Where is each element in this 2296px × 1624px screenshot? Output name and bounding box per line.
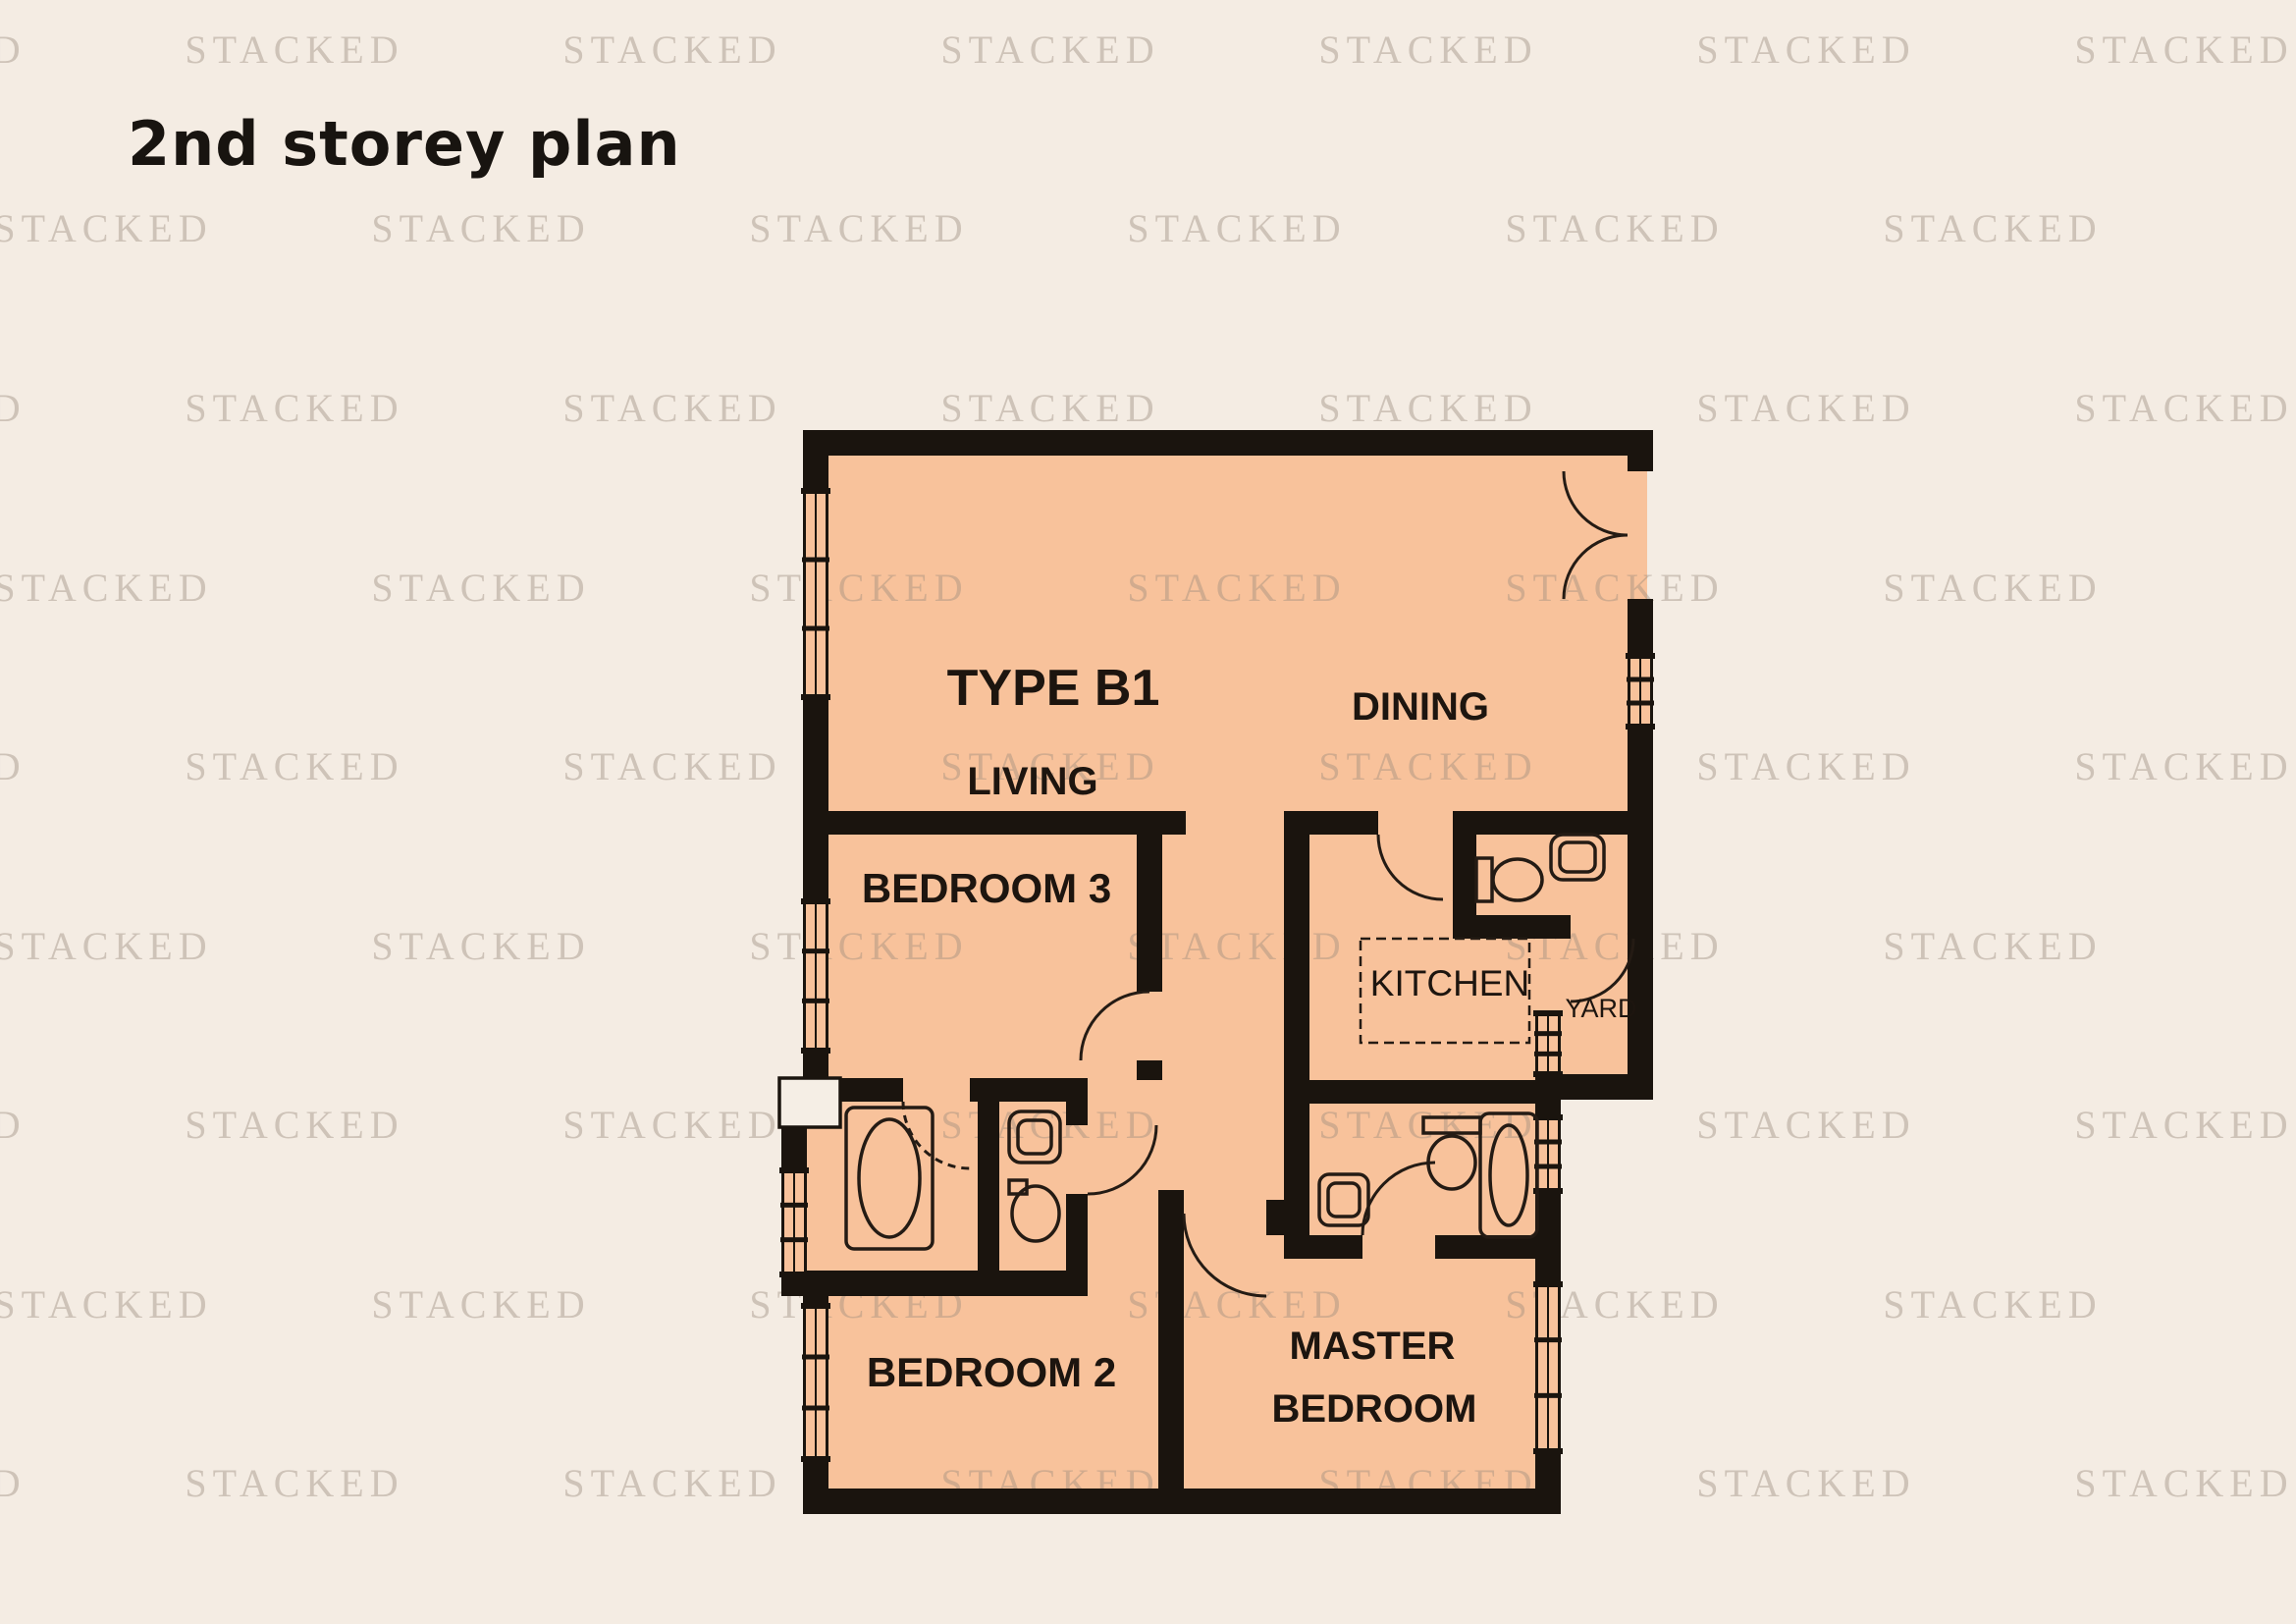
watermark-text: STACKED (749, 206, 968, 250)
window-part (1626, 653, 1655, 659)
wall-segment (1628, 456, 1653, 471)
watermark-text: STACKED (562, 1461, 781, 1505)
window-part (802, 1406, 829, 1411)
watermark-text: STACKED (0, 566, 213, 610)
window-part (1533, 1448, 1563, 1454)
watermark-text: STACKED (0, 924, 213, 968)
wall-segment (1453, 811, 1628, 835)
watermark-text: STACKED (562, 386, 781, 430)
watermark-text: STACKED (1505, 206, 1724, 250)
wall-segment (781, 1271, 1088, 1296)
watermark-text: STACKED (0, 386, 27, 430)
watermark-text: STACKED (1883, 924, 2102, 968)
wall-segment (1284, 811, 1309, 1104)
master-bedroom-label-line2: BEDROOM (1272, 1387, 1477, 1431)
window-part (1626, 724, 1655, 730)
watermark-text: STACKED (1505, 566, 1724, 610)
watermark-text: STACKED (2074, 27, 2293, 72)
watermark-text: STACKED (371, 206, 590, 250)
master-bedroom-label-line1: MASTER (1290, 1325, 1456, 1368)
watermark-text: STACKED (562, 27, 781, 72)
window-part (802, 558, 829, 563)
window-part (1534, 1393, 1562, 1398)
watermark-text: STACKED (749, 924, 968, 968)
yard-label: YARD (1565, 994, 1636, 1023)
wall-segment (803, 1489, 1561, 1514)
window-part (1627, 677, 1654, 682)
watermark-text: STACKED (1318, 386, 1537, 430)
watermark-text: STACKED (0, 206, 213, 250)
window-part (1534, 1052, 1562, 1056)
window-part (1533, 1010, 1563, 1016)
window-part (1627, 701, 1654, 706)
dining-label: DINING (1352, 685, 1489, 729)
watermark-text: STACKED (185, 1461, 403, 1505)
window-part (802, 999, 829, 1003)
wall-segment (1266, 1200, 1284, 1235)
bedroom2-label: BEDROOM 2 (867, 1349, 1116, 1395)
wall-segment (803, 811, 1186, 835)
watermark-text: STACKED (1318, 744, 1537, 788)
wall-segment (1137, 1060, 1162, 1080)
wall-segment (1476, 915, 1571, 939)
watermark-text: STACKED (2074, 1461, 2293, 1505)
wall-segment (1066, 1102, 1088, 1125)
wall-segment (1453, 811, 1476, 939)
window-part (801, 898, 830, 904)
watermark-text: STACKED (1883, 566, 2102, 610)
watermark-text: STACKED (562, 744, 781, 788)
window-part (801, 488, 830, 494)
watermark-text: STACKED (0, 1282, 213, 1326)
unit-type-label: TYPE B1 (947, 660, 1160, 717)
floor-plan: STACKEDSTACKEDSTACKEDSTACKEDSTACKEDSTACK… (0, 0, 2296, 1624)
window-part (801, 1456, 830, 1462)
watermark-text: STACKED (1883, 206, 2102, 250)
kitchen-label: KITCHEN (1370, 963, 1529, 1003)
watermark-text: STACKED (185, 744, 403, 788)
watermark-text: STACKED (1696, 386, 1915, 430)
living-label: LIVING (967, 760, 1097, 803)
window-part (779, 1272, 809, 1277)
wall-segment (803, 430, 1653, 456)
watermark-text: STACKED (185, 27, 403, 72)
wall-segment (970, 1078, 1088, 1102)
watermark-text: STACKED (371, 1282, 590, 1326)
watermark-text: STACKED (562, 1103, 781, 1147)
watermark-text: STACKED (1696, 27, 1915, 72)
window-icon (1533, 1281, 1563, 1454)
wall-segment (978, 1102, 999, 1274)
window-part (802, 1355, 829, 1360)
watermark-text: STACKED (1127, 206, 1346, 250)
window-part (801, 1303, 830, 1309)
window-icon (801, 1303, 830, 1462)
window-part (802, 626, 829, 631)
wall-segment (1628, 599, 1653, 656)
wall-segment (1535, 1191, 1561, 1284)
watermark-text: STACKED (940, 386, 1159, 430)
window-icon (779, 1167, 809, 1277)
watermark-layer: STACKEDSTACKEDSTACKEDSTACKEDSTACKEDSTACK… (0, 27, 2294, 1505)
window-icon (1533, 1010, 1563, 1077)
window-part (1533, 1281, 1563, 1287)
wall-segment (1628, 727, 1653, 1100)
wall-segment (1137, 835, 1162, 992)
watermark-text: STACKED (185, 386, 403, 430)
wall-segment (1561, 1074, 1653, 1100)
wall-segment (803, 697, 828, 901)
watermark-text: STACKED (0, 1103, 27, 1147)
wall-segment (781, 1125, 807, 1170)
watermark-text: STACKED (371, 924, 590, 968)
watermark-text: STACKED (1696, 744, 1915, 788)
wall-segment (803, 430, 828, 491)
window-icon (801, 488, 830, 700)
window-part (779, 1167, 809, 1173)
window-part (1534, 1337, 1562, 1342)
shaft-box (779, 1078, 840, 1127)
window-part (801, 1048, 830, 1054)
watermark-text: STACKED (1127, 566, 1346, 610)
watermark-text: STACKED (371, 566, 590, 610)
wall-segment (803, 1459, 828, 1514)
watermark-text: STACKED (0, 27, 27, 72)
watermark-text: STACKED (2074, 744, 2293, 788)
window-part (801, 694, 830, 700)
window-part (1534, 1031, 1562, 1036)
window-icon (1626, 653, 1655, 730)
window-part (780, 1237, 808, 1242)
watermark-text: STACKED (2074, 386, 2293, 430)
watermark-text: STACKED (0, 1461, 27, 1505)
watermark-text: STACKED (185, 1103, 403, 1147)
watermark-text: STACKED (940, 27, 1159, 72)
bedroom3-label: BEDROOM 3 (862, 865, 1111, 911)
window-icon (801, 898, 830, 1054)
wall-segment (1066, 1194, 1088, 1274)
watermark-text: STACKED (1696, 1103, 1915, 1147)
floor-plan-page: 2nd storey plan STACKEDSTACKEDSTACKEDSTA… (0, 0, 2296, 1624)
window-part (802, 948, 829, 953)
window-part (780, 1203, 808, 1208)
watermark-text: STACKED (0, 744, 27, 788)
wall-segment (1158, 1190, 1184, 1489)
window-part (1533, 1071, 1563, 1077)
watermark-text: STACKED (2074, 1103, 2293, 1147)
wall-segment (1284, 1080, 1561, 1104)
watermark-text: STACKED (749, 566, 968, 610)
watermark-text: STACKED (1318, 27, 1537, 72)
watermark-text: STACKED (1883, 1282, 2102, 1326)
wall-segment (1284, 811, 1378, 835)
wall-segment (1284, 1235, 1362, 1259)
watermark-text: STACKED (1696, 1461, 1915, 1505)
